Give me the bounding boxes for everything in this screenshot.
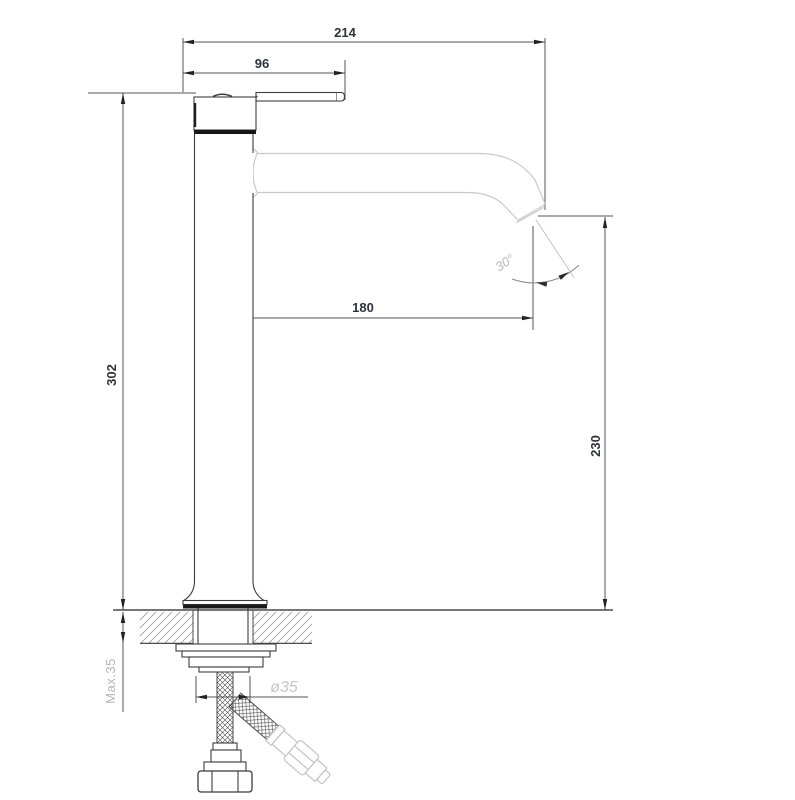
vertical-hose-braid: [217, 672, 233, 743]
locknut-body: [189, 657, 263, 667]
locknut-washer-1: [176, 644, 276, 651]
deck-hatch-right: [253, 612, 312, 643]
technical-drawing-canvas: 214 96 302 Max.35 180 230: [0, 0, 795, 800]
hose-block: [211, 750, 241, 762]
locknut-washer-2: [182, 651, 270, 657]
dim-shank-diameter-label: ø35: [270, 679, 298, 696]
base-plate-band: [183, 605, 267, 609]
handle-lever-cap: [337, 93, 345, 102]
dim-outlet-height-label: 230: [588, 435, 603, 457]
body-column-fill: [195, 134, 254, 580]
dim-spout-reach-label: 180: [352, 300, 374, 315]
technical-drawing-page: 214 96 302 Max.35 180 230: [0, 0, 795, 800]
hose-collar: [213, 743, 237, 750]
dim-overall-width-label: 214: [334, 25, 356, 40]
dim-body-height-label: 302: [104, 364, 119, 386]
base-plate: [183, 601, 267, 605]
drawing-background: [0, 0, 795, 800]
handle-lever: [256, 93, 337, 102]
cartridge-head: [194, 97, 256, 130]
head-base-ring: [194, 130, 256, 134]
hose-end-nut: [198, 771, 252, 792]
deck-hatch-left: [140, 612, 193, 643]
dim-max-thickness-label: Max.35: [103, 658, 118, 704]
hose-flange: [204, 762, 246, 771]
locknut-collar: [199, 667, 249, 672]
dim-handle-reach-label: 96: [255, 56, 269, 71]
